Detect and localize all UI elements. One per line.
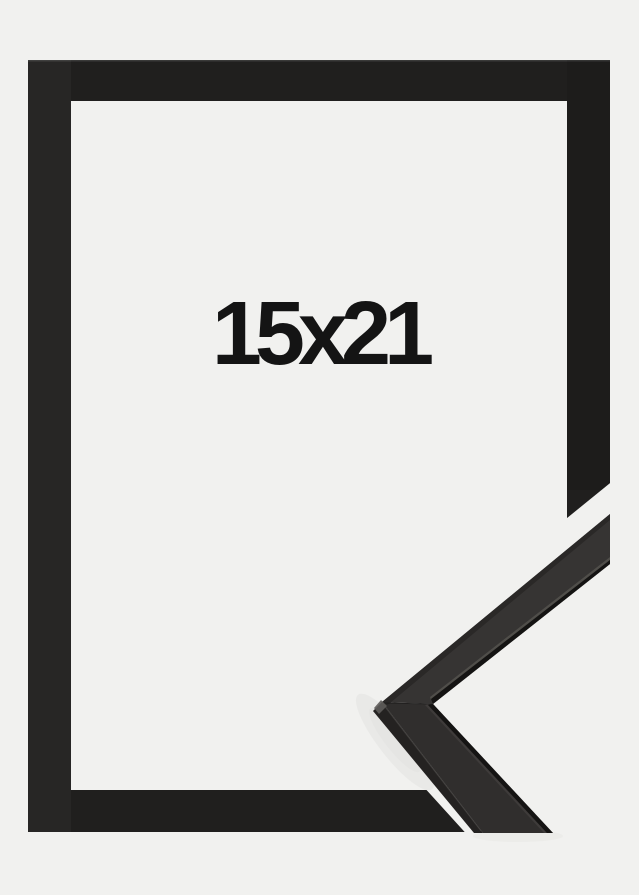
size-label: 15x21	[0, 289, 639, 379]
frame-top-edge-highlight	[28, 60, 610, 62]
frame-photo-svg	[0, 0, 639, 895]
product-photo: 15x21	[0, 0, 639, 895]
frame-right-bar-shade	[567, 60, 610, 490]
frame-left-bar-sheen	[28, 60, 71, 832]
